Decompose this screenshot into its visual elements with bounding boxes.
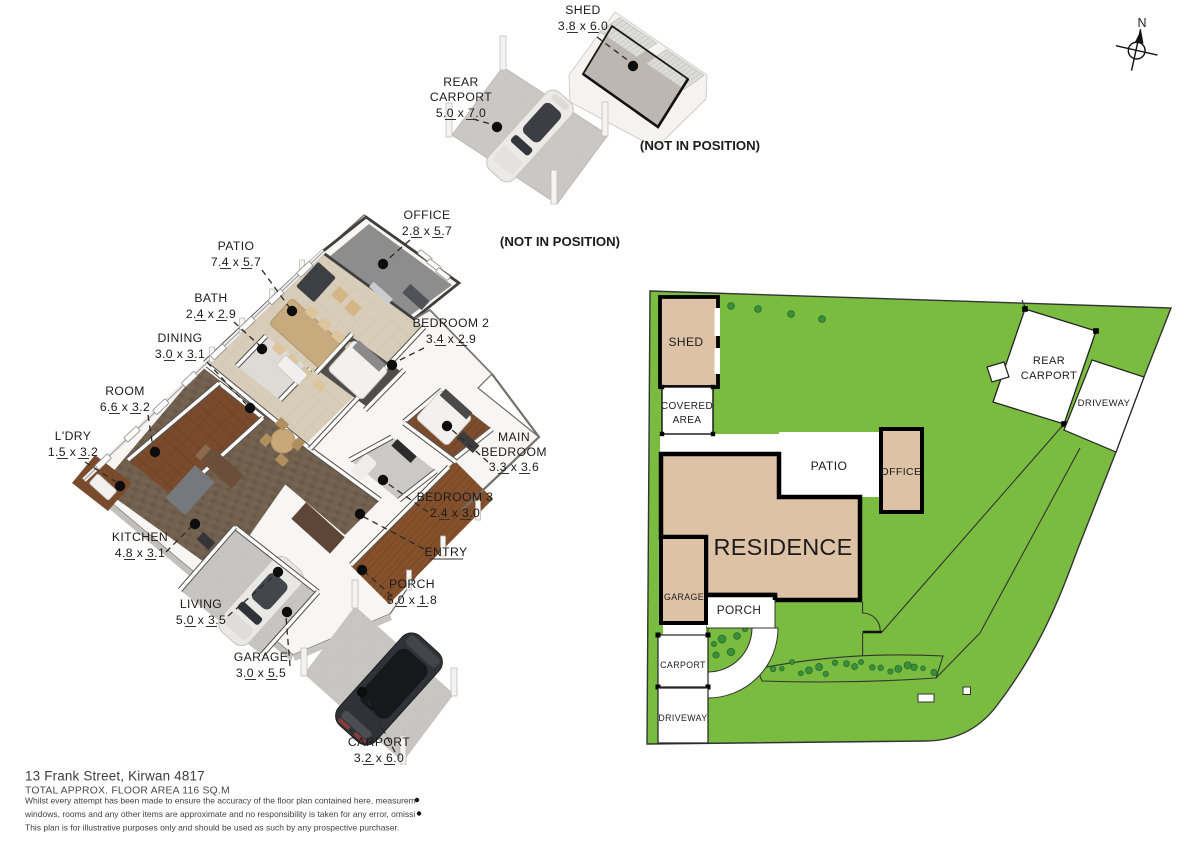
svg-text:CARPORT: CARPORT — [660, 660, 706, 670]
svg-text:1.5 x 3.2: 1.5 x 3.2 — [48, 445, 98, 459]
svg-text:BATH: BATH — [194, 291, 227, 305]
svg-text:DRIVEWAY: DRIVEWAY — [1078, 398, 1131, 409]
svg-text:ROOM: ROOM — [105, 384, 145, 398]
svg-text:REAR: REAR — [1033, 355, 1065, 367]
svg-text:N: N — [1137, 16, 1146, 30]
svg-text:CARPORT: CARPORT — [1021, 370, 1077, 382]
svg-text:COVERED: COVERED — [661, 401, 713, 412]
svg-text:ENTRY: ENTRY — [424, 545, 467, 559]
svg-text:2.4 x 2.9: 2.4 x 2.9 — [186, 307, 236, 321]
svg-text:13 Frank Street, Kirwan 4817: 13 Frank Street, Kirwan 4817 — [25, 769, 205, 784]
svg-text:BEDROOM 3: BEDROOM 3 — [417, 490, 494, 504]
svg-text:OFFICE: OFFICE — [881, 466, 922, 478]
svg-text:5.0 x 7.0: 5.0 x 7.0 — [436, 106, 486, 120]
svg-text:SHED: SHED — [565, 3, 600, 17]
svg-text:PATIO: PATIO — [218, 239, 255, 253]
svg-text:PORCH: PORCH — [717, 603, 762, 617]
svg-text:PORCH: PORCH — [389, 577, 435, 591]
svg-text:PATIO: PATIO — [811, 459, 848, 473]
svg-text:REAR: REAR — [443, 75, 478, 89]
svg-text:BEDROOM: BEDROOM — [481, 445, 547, 459]
svg-text:3.4 x 2.9: 3.4 x 2.9 — [426, 332, 476, 346]
svg-text:CARPORT: CARPORT — [348, 735, 410, 749]
svg-text:4.8 x 3.1: 4.8 x 3.1 — [115, 546, 165, 560]
svg-text:3.3 x 3.6: 3.3 x 3.6 — [489, 460, 539, 474]
svg-text:3.0 x 5.5: 3.0 x 5.5 — [236, 666, 286, 680]
svg-text:3.8 x 6.0: 3.8 x 6.0 — [558, 19, 608, 33]
svg-text:2.8 x 5.7: 2.8 x 5.7 — [402, 224, 452, 238]
svg-text:2.4 x 3.0: 2.4 x 3.0 — [430, 506, 480, 520]
svg-text:KITCHEN: KITCHEN — [112, 530, 168, 544]
svg-text:MAIN: MAIN — [498, 430, 530, 444]
svg-text:CARPORT: CARPORT — [430, 90, 492, 104]
svg-text:LIVING: LIVING — [180, 597, 222, 611]
svg-text:GARAGE: GARAGE — [664, 592, 704, 602]
svg-text:(NOT IN POSITION): (NOT IN POSITION) — [640, 138, 760, 153]
svg-text:Whilst every attempt has been: Whilst every attempt has been made to en… — [25, 796, 416, 806]
svg-text:OFFICE: OFFICE — [403, 208, 450, 222]
svg-text:GARAGE: GARAGE — [234, 650, 289, 664]
svg-text:(NOT IN POSITION): (NOT IN POSITION) — [500, 234, 620, 249]
svg-text:windows, rooms and any other i: windows, rooms and any other items are a… — [24, 809, 415, 819]
svg-text:DINING: DINING — [157, 331, 202, 345]
svg-text:7.4 x 5.7: 7.4 x 5.7 — [211, 255, 261, 269]
svg-text:BEDROOM 2: BEDROOM 2 — [413, 316, 490, 330]
svg-text:3.0 x 3.1: 3.0 x 3.1 — [155, 347, 205, 361]
svg-text:This plan is for illustrative: This plan is for illustrative purposes o… — [25, 823, 399, 833]
svg-text:6.6 x 3.2: 6.6 x 3.2 — [100, 400, 150, 414]
svg-text:5.0 x 3.5: 5.0 x 3.5 — [176, 613, 226, 627]
svg-text:3.2 x 6.0: 3.2 x 6.0 — [354, 751, 404, 765]
svg-text:L'DRY: L'DRY — [55, 429, 92, 443]
svg-text:SHED: SHED — [669, 335, 704, 349]
svg-text:AREA: AREA — [673, 415, 702, 426]
svg-text:5.0 x 1.8: 5.0 x 1.8 — [387, 593, 437, 607]
svg-text:RESIDENCE: RESIDENCE — [714, 534, 853, 560]
svg-text:DRIVEWAY: DRIVEWAY — [658, 713, 707, 723]
